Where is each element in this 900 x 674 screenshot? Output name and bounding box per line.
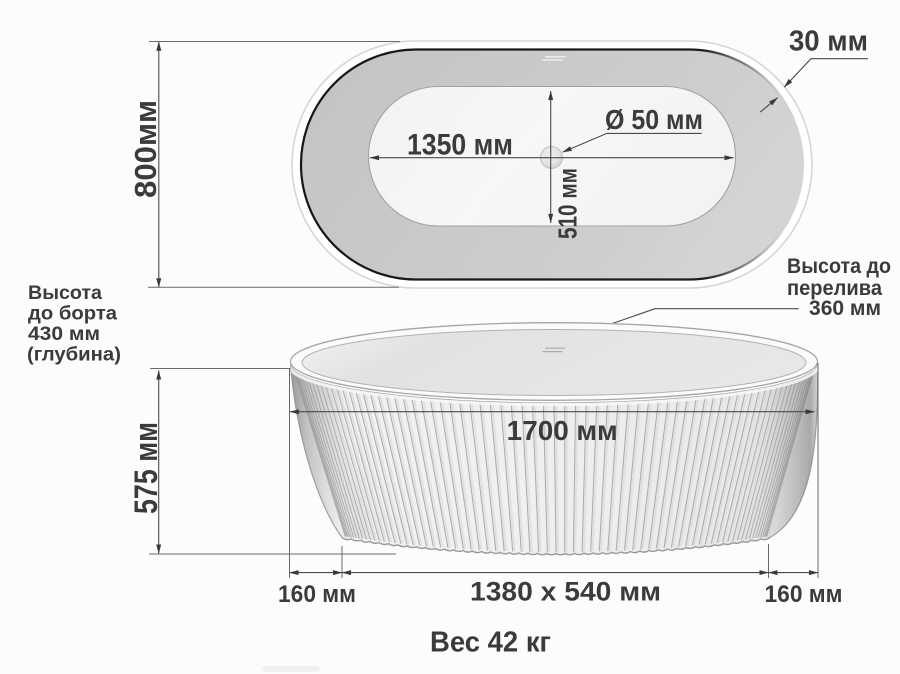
svg-text:Высота до: Высота до bbox=[787, 254, 891, 278]
svg-text:1350 мм: 1350 мм bbox=[407, 129, 513, 162]
svg-text:800мм: 800мм bbox=[129, 100, 163, 198]
svg-text:1700 мм: 1700 мм bbox=[507, 415, 618, 446]
svg-text:1380 x 540 мм: 1380 x 540 мм bbox=[470, 577, 661, 607]
svg-text:430 мм: 430 мм bbox=[28, 323, 100, 345]
svg-text:Ø 50 мм: Ø 50 мм bbox=[605, 104, 703, 135]
svg-text:(глубина): (глубина) bbox=[27, 344, 121, 366]
svg-text:30 мм: 30 мм bbox=[789, 26, 868, 58]
svg-text:Вес 42 кг: Вес 42 кг bbox=[430, 627, 551, 659]
svg-text:Высота: Высота bbox=[28, 282, 102, 304]
svg-text:575 мм: 575 мм bbox=[128, 422, 164, 514]
svg-text:360 мм: 360 мм bbox=[809, 296, 881, 320]
svg-text:до борта: до борта bbox=[28, 303, 117, 325]
svg-text:160 мм: 160 мм bbox=[278, 581, 356, 608]
svg-text:510 мм: 510 мм bbox=[553, 168, 583, 239]
svg-text:160 мм: 160 мм bbox=[765, 581, 843, 608]
